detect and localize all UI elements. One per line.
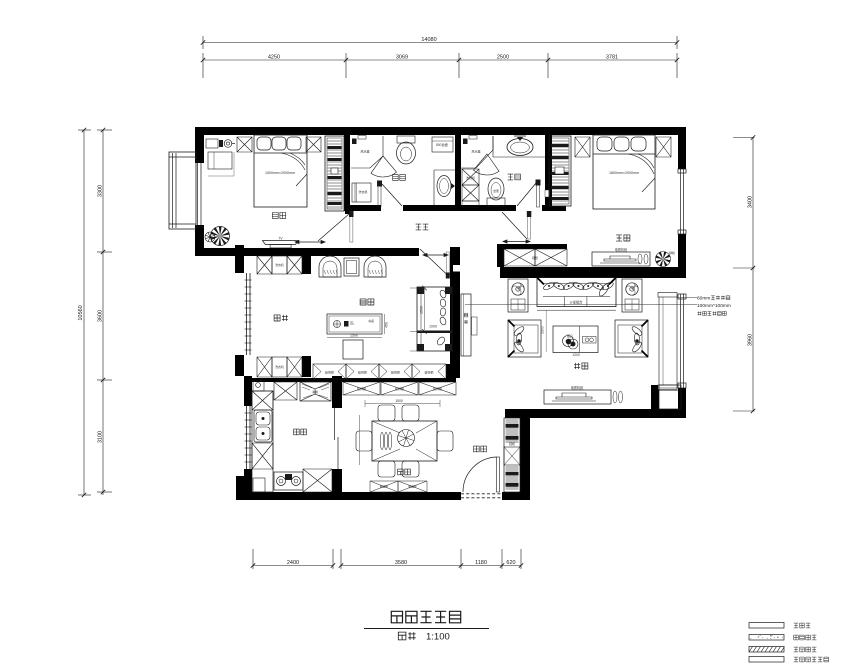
svg-text:1800mm×2000mm: 1800mm×2000mm [609,171,639,175]
svg-text:4250: 4250 [268,55,280,61]
svg-text:绿植: 绿植 [669,250,675,255]
svg-text:装饰柜: 装饰柜 [395,386,404,391]
svg-text:2400: 2400 [287,560,299,566]
svg-text:洗衣机: 洗衣机 [275,365,284,369]
svg-text:装饰柜: 装饰柜 [424,370,433,375]
svg-text:1000: 1000 [429,325,437,329]
svg-text:洗衣机: 洗衣机 [466,175,475,180]
svg-text:1:100: 1:100 [426,632,450,643]
svg-text:3600: 3600 [98,310,104,322]
svg-text:冰箱: 冰箱 [312,389,318,394]
svg-text:装饰柜: 装饰柜 [357,386,366,391]
svg-text:3580: 3580 [395,560,407,566]
svg-text:鞋柜: 鞋柜 [509,441,515,446]
svg-text:3100: 3100 [98,431,104,443]
svg-text:电视机柜: 电视机柜 [571,385,585,390]
svg-text:电视机柜: 电视机柜 [615,247,629,252]
svg-text:装饰柜: 装饰柜 [358,370,367,375]
svg-text:1180: 1180 [475,560,487,566]
svg-text:鞋柜: 鞋柜 [532,255,538,260]
svg-text:620: 620 [506,560,515,566]
svg-text:热水器: 热水器 [471,149,480,154]
svg-text:100mm*100mm: 100mm*100mm [697,303,731,309]
svg-text:3300: 3300 [98,185,104,197]
svg-text:1500mm×2000mm: 1500mm×2000mm [265,171,295,175]
svg-text:3400: 3400 [748,196,754,208]
svg-text:800台面: 800台面 [436,142,448,147]
svg-text:书桌: 书桌 [368,318,374,323]
svg-text:450: 450 [385,322,389,328]
svg-text:1500: 1500 [350,334,358,338]
svg-text:1500: 1500 [420,306,424,314]
svg-text:3960: 3960 [748,334,754,346]
svg-text:14080: 14080 [421,37,436,43]
svg-text:装饰柜: 装饰柜 [325,370,334,375]
svg-text:洗衣机: 洗衣机 [358,189,367,194]
svg-text:茶几: 茶几 [567,334,574,339]
svg-text:装饰柜: 装饰柜 [391,370,400,375]
svg-text:餐边柜: 餐边柜 [408,485,417,489]
svg-text:热水器: 热水器 [360,149,369,154]
svg-text:3069: 3069 [396,55,408,61]
svg-text:洗衣机: 洗衣机 [275,263,284,267]
svg-text:装饰柜: 装饰柜 [433,386,442,391]
svg-text:10560: 10560 [78,305,84,320]
svg-text:1200: 1200 [572,353,580,357]
svg-text:60mm: 60mm [697,296,710,302]
svg-text:3781: 3781 [606,55,618,61]
svg-text:2500: 2500 [497,55,509,61]
svg-text:1500: 1500 [395,399,403,403]
svg-text:沙发组合: 沙发组合 [570,300,584,305]
svg-text:坐便: 坐便 [493,189,499,193]
svg-text:餐边柜: 餐边柜 [380,485,389,489]
